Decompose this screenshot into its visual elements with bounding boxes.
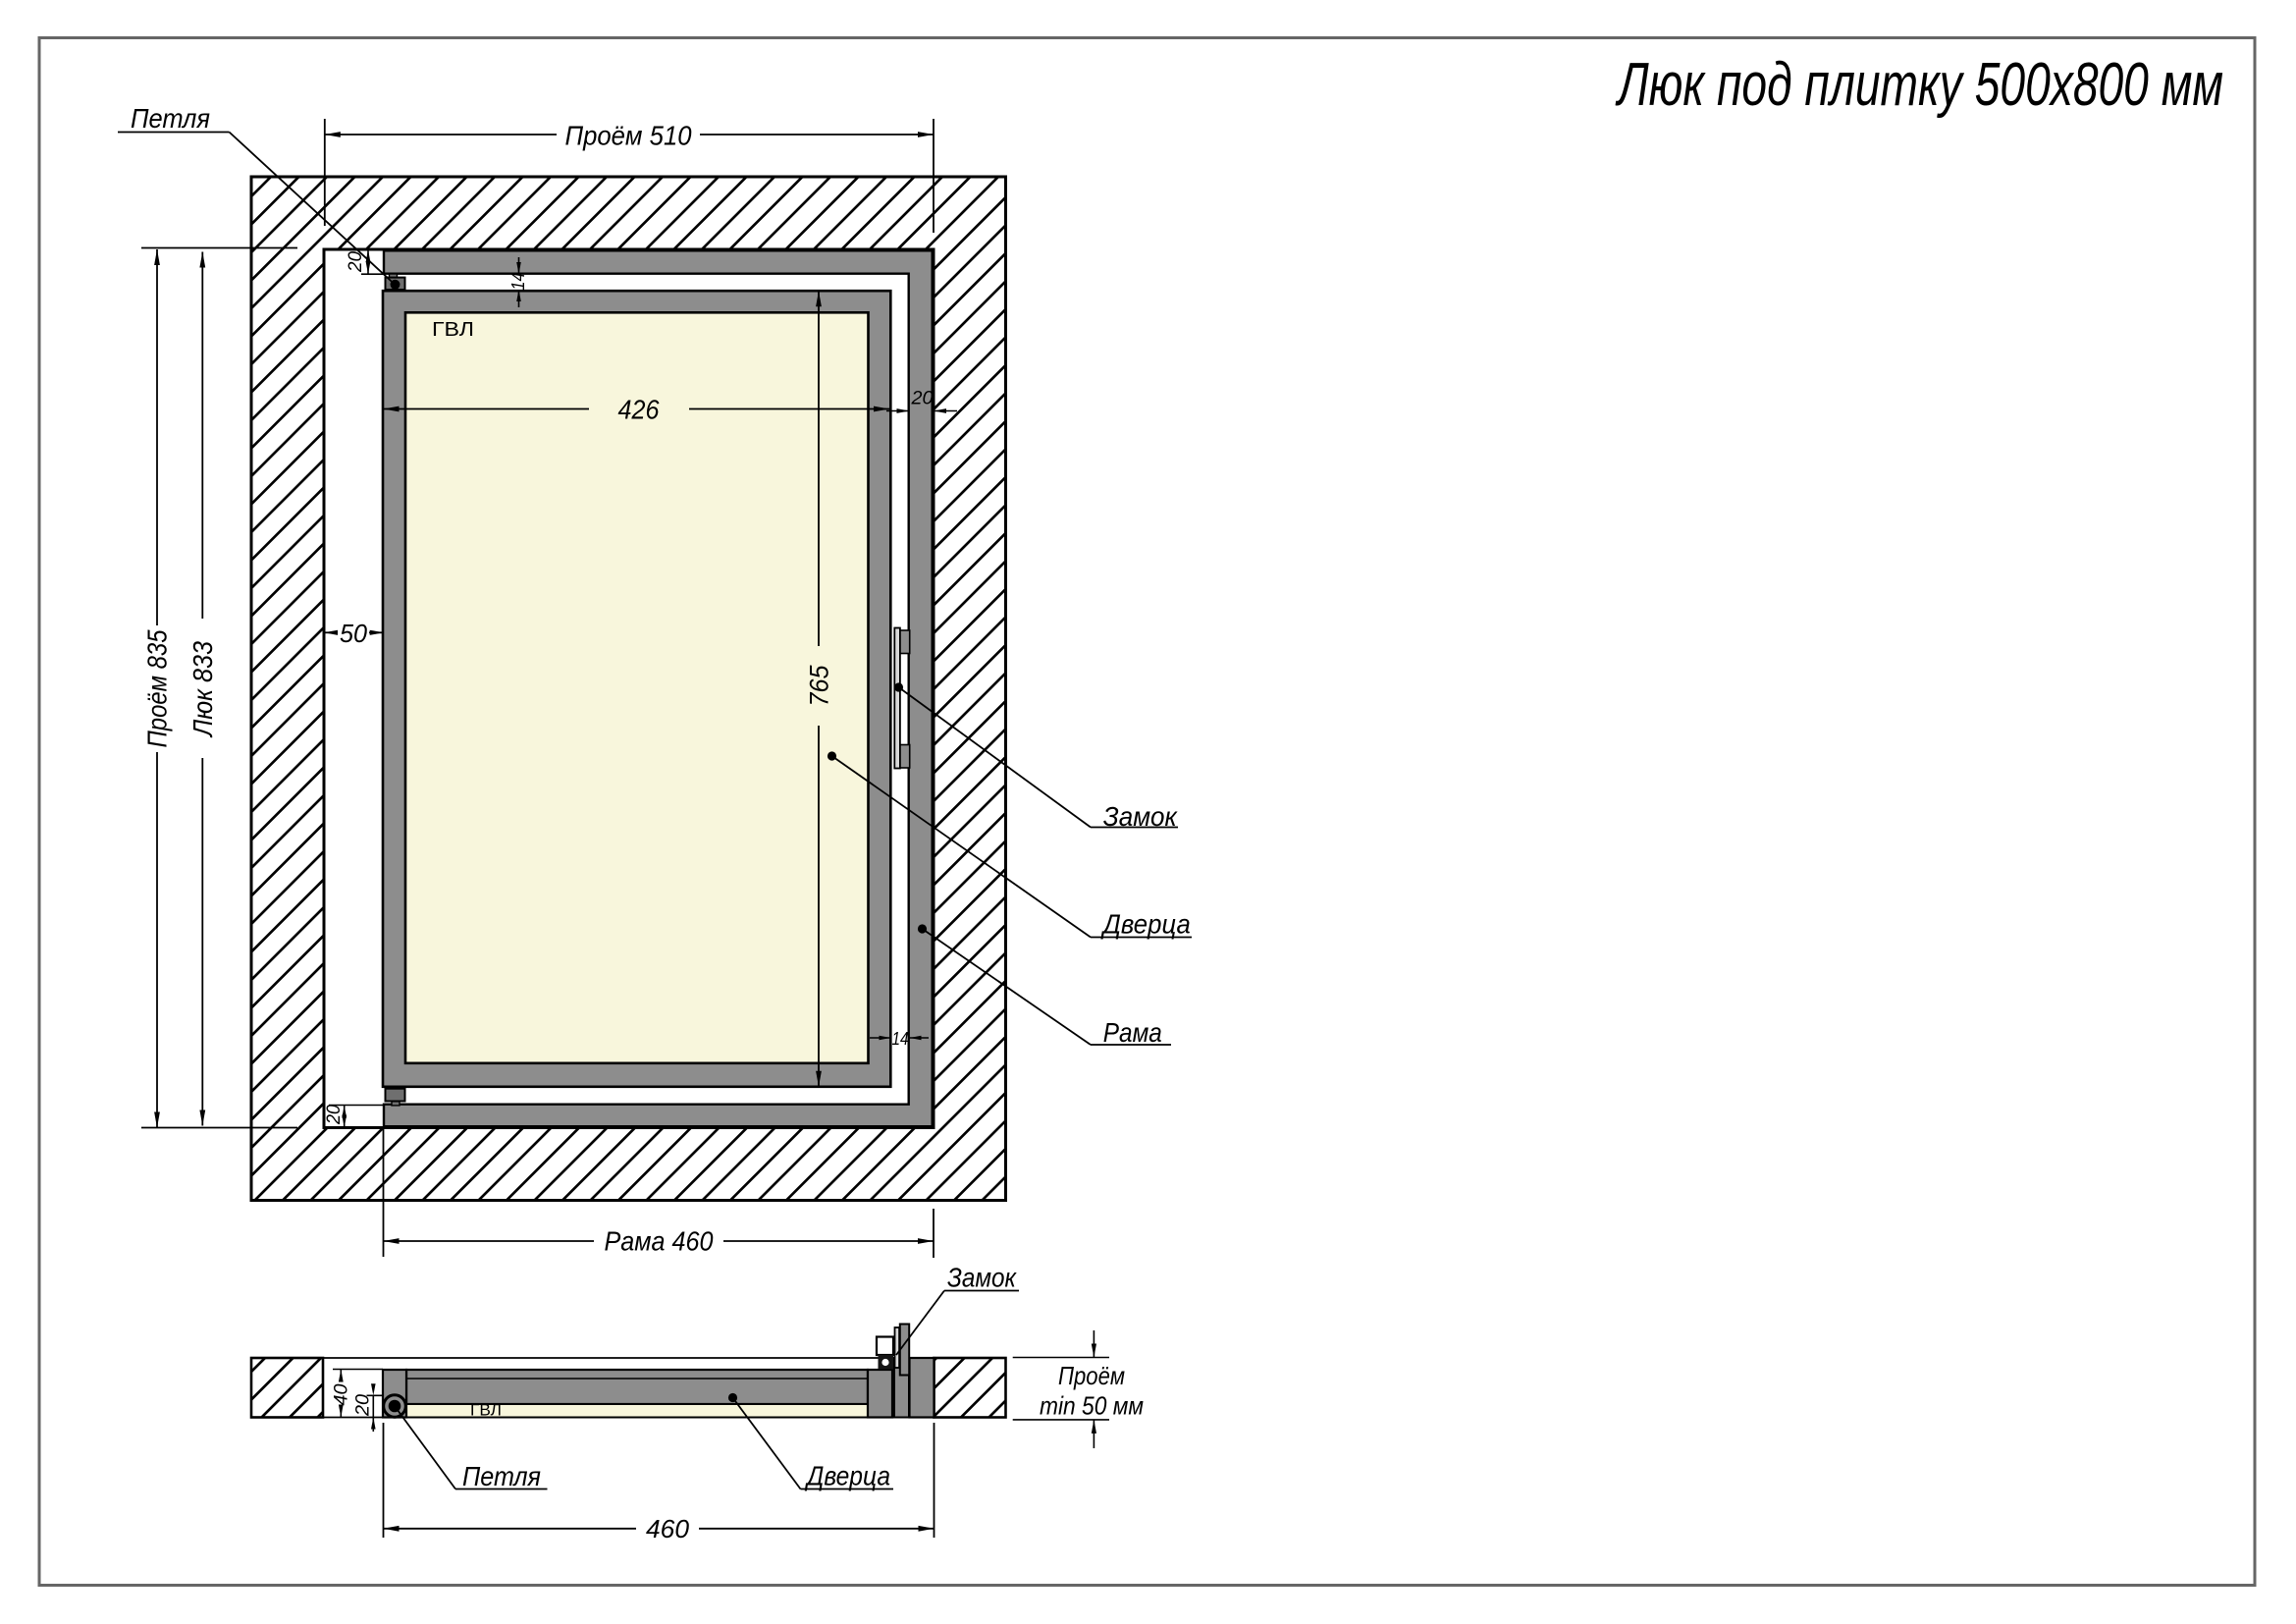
svg-text:426: 426: [618, 395, 660, 425]
svg-text:20: 20: [353, 1394, 374, 1417]
svg-text:Петля: Петля: [462, 1461, 541, 1491]
svg-text:20: 20: [910, 389, 933, 409]
svg-text:20: 20: [324, 1105, 345, 1125]
svg-text:Проём 835: Проём 835: [142, 629, 173, 747]
svg-text:40: 40: [332, 1383, 352, 1405]
svg-text:min 50 мм: min 50 мм: [1040, 1391, 1144, 1421]
svg-text:ГВЛ: ГВЛ: [470, 1401, 502, 1420]
svg-text:Дверца: Дверца: [1100, 909, 1191, 940]
svg-text:Люк под плитку 500х800 мм: Люк под плитку 500х800 мм: [1615, 51, 2223, 119]
svg-text:Проём 510: Проём 510: [565, 121, 692, 151]
svg-text:Петля: Петля: [131, 103, 210, 134]
svg-text:14: 14: [892, 1029, 909, 1049]
svg-text:50: 50: [340, 619, 368, 648]
svg-text:Люк 833: Люк 833: [187, 641, 218, 738]
svg-text:Рама: Рама: [1103, 1017, 1162, 1048]
svg-text:Замок: Замок: [1103, 801, 1179, 832]
svg-text:Рама 460: Рама 460: [605, 1225, 714, 1256]
svg-text:Проём: Проём: [1058, 1361, 1125, 1390]
svg-text:460: 460: [646, 1514, 690, 1543]
svg-text:Замок: Замок: [947, 1263, 1018, 1293]
svg-text:765: 765: [805, 665, 834, 707]
svg-text:14: 14: [508, 273, 528, 291]
svg-text:Дверца: Дверца: [804, 1461, 890, 1491]
svg-text:ГВЛ: ГВЛ: [432, 319, 474, 341]
